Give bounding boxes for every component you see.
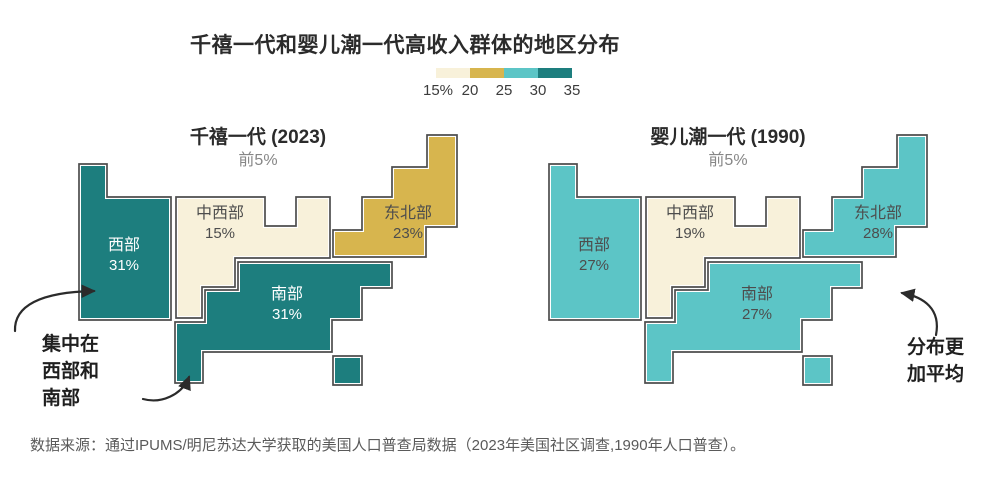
region-label-midwest: 中西部: [180, 204, 260, 223]
annotation-line: 加平均: [907, 361, 964, 388]
region-south-florida-block: [803, 356, 832, 385]
region-value-midwest: 15%: [180, 225, 260, 243]
region-value-west: 27%: [554, 257, 634, 275]
region-value-south: 27%: [717, 306, 797, 324]
region-value-northeast: 28%: [838, 225, 918, 243]
region-value-west: 31%: [84, 257, 164, 275]
region-label-west: 西部: [554, 236, 634, 255]
region-label-west: 西部: [84, 236, 164, 255]
region-value-northeast: 23%: [368, 225, 448, 243]
annotation-line: 集中在: [42, 331, 99, 358]
region-label-midwest: 中西部: [650, 204, 730, 223]
chart-canvas: 千禧一代和婴儿潮一代高收入群体的地区分布 15% 20 25 30 35 千禧一…: [0, 0, 994, 478]
panel-boomers: 婴儿潮一代 (1990) 前5% 西部 27% 中西: [470, 0, 940, 440]
region-value-midwest: 19%: [650, 225, 730, 243]
annotation-line: 南部: [42, 385, 99, 412]
annotation-more-even-distribution: 分布更 加平均: [907, 334, 964, 388]
annotation-line: 分布更: [907, 334, 964, 361]
region-label-northeast: 东北部: [368, 204, 448, 223]
region-label-south: 南部: [247, 285, 327, 304]
region-label-south: 南部: [717, 285, 797, 304]
annotation-line: 西部和: [42, 358, 99, 385]
region-value-south: 31%: [247, 306, 327, 324]
region-label-northeast: 东北部: [838, 204, 918, 223]
data-source-note: 数据来源：通过IPUMS/明尼苏达大学获取的美国人口普查局数据（2023年美国社…: [30, 434, 745, 455]
annotation-concentrated-west-south: 集中在 西部和 南部: [42, 331, 99, 412]
region-south-florida-block: [333, 356, 362, 385]
